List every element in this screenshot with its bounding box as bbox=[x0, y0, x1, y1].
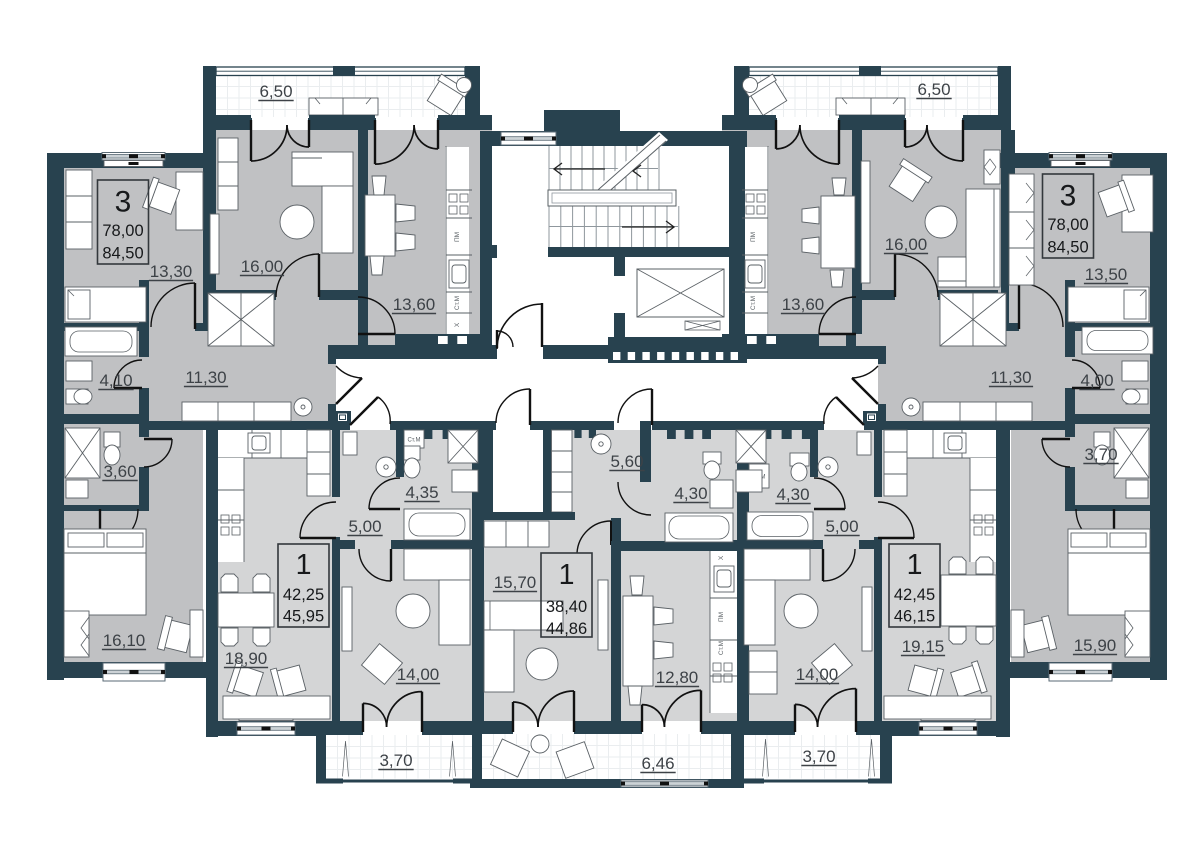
svg-text:16,00: 16,00 bbox=[241, 257, 284, 276]
svg-text:5,60: 5,60 bbox=[610, 452, 643, 471]
svg-text:4,10: 4,10 bbox=[99, 371, 132, 390]
svg-text:3,70: 3,70 bbox=[802, 747, 835, 766]
svg-text:1: 1 bbox=[907, 549, 923, 581]
svg-text:13,60: 13,60 bbox=[782, 295, 825, 314]
svg-text:42,45: 42,45 bbox=[894, 586, 935, 604]
svg-text:14,00: 14,00 bbox=[397, 665, 440, 684]
svg-text:5,00: 5,00 bbox=[825, 517, 858, 536]
svg-text:6,46: 6,46 bbox=[641, 754, 674, 773]
svg-text:Х: Х bbox=[718, 555, 725, 560]
svg-text:13,50: 13,50 bbox=[1085, 265, 1128, 284]
svg-text:78,00: 78,00 bbox=[102, 222, 143, 240]
svg-text:19,15: 19,15 bbox=[902, 637, 945, 656]
svg-text:1: 1 bbox=[559, 559, 575, 591]
svg-text:3: 3 bbox=[1060, 180, 1077, 213]
svg-text:5,00: 5,00 bbox=[348, 517, 381, 536]
svg-text:16,10: 16,10 bbox=[103, 631, 146, 650]
svg-text:ПМ: ПМ bbox=[454, 232, 461, 242]
svg-text:44,86: 44,86 bbox=[546, 620, 587, 638]
svg-text:38,40: 38,40 bbox=[546, 598, 587, 616]
svg-text:11,30: 11,30 bbox=[990, 368, 1031, 387]
svg-text:11,30: 11,30 bbox=[185, 368, 226, 387]
svg-text:Х: Х bbox=[454, 322, 461, 327]
svg-text:3,70: 3,70 bbox=[379, 751, 412, 770]
svg-text:Ст.М: Ст.М bbox=[454, 296, 461, 310]
svg-text:78,00: 78,00 bbox=[1047, 216, 1088, 234]
svg-text:16,00: 16,00 bbox=[885, 235, 928, 254]
svg-text:4,30: 4,30 bbox=[674, 484, 707, 503]
svg-text:3,70: 3,70 bbox=[1084, 445, 1117, 464]
svg-text:46,15: 46,15 bbox=[894, 608, 935, 626]
svg-text:Ст.М: Ст.М bbox=[718, 641, 725, 655]
svg-text:84,50: 84,50 bbox=[102, 245, 143, 263]
svg-text:6,50: 6,50 bbox=[259, 82, 292, 101]
svg-text:45,95: 45,95 bbox=[283, 608, 324, 626]
svg-text:15,90: 15,90 bbox=[1074, 636, 1117, 655]
svg-text:12,80: 12,80 bbox=[656, 668, 699, 687]
svg-text:Ст.М: Ст.М bbox=[750, 296, 757, 310]
svg-text:13,60: 13,60 bbox=[393, 295, 436, 314]
svg-text:14,00: 14,00 bbox=[796, 665, 839, 684]
svg-text:ПМ: ПМ bbox=[718, 612, 725, 622]
svg-text:3: 3 bbox=[115, 186, 132, 219]
svg-text:ПМ: ПМ bbox=[750, 232, 757, 242]
svg-text:1: 1 bbox=[296, 549, 312, 581]
svg-text:4,35: 4,35 bbox=[405, 483, 438, 502]
svg-text:42,25: 42,25 bbox=[283, 586, 324, 604]
svg-text:6,50: 6,50 bbox=[917, 80, 950, 99]
svg-text:4,00: 4,00 bbox=[1080, 371, 1113, 390]
svg-text:3,60: 3,60 bbox=[103, 462, 136, 481]
svg-text:18,90: 18,90 bbox=[225, 649, 268, 668]
svg-text:4,30: 4,30 bbox=[776, 485, 809, 504]
svg-text:Ст.М: Ст.М bbox=[407, 438, 420, 444]
svg-text:15,70: 15,70 bbox=[494, 573, 537, 592]
svg-text:13,30: 13,30 bbox=[150, 262, 193, 281]
svg-text:84,50: 84,50 bbox=[1047, 239, 1088, 257]
